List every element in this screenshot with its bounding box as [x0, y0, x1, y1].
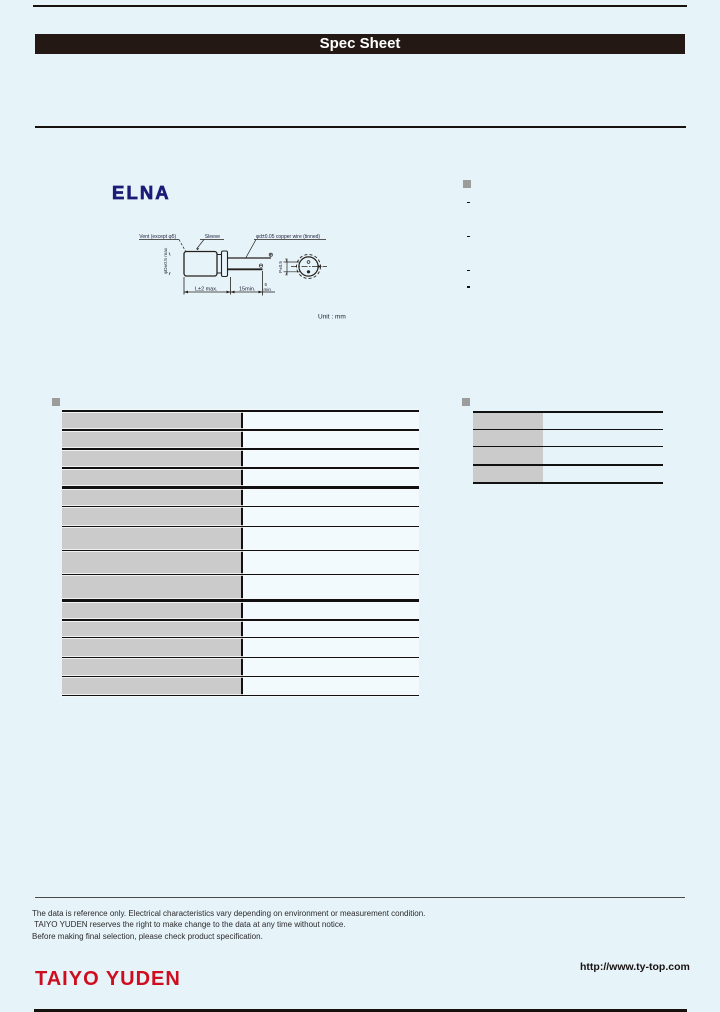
svg-text:min: min — [264, 287, 272, 292]
svg-text:φD±0.5 max: φD±0.5 max — [163, 247, 169, 274]
svg-text:Sleeve: Sleeve — [205, 234, 221, 240]
svg-text:L±2 max.: L±2 max. — [195, 287, 218, 293]
svg-text:Unit : mm: Unit : mm — [318, 313, 346, 320]
svg-text:φd±0.05 copper wire (tinned): φd±0.05 copper wire (tinned) — [256, 234, 320, 240]
svg-text:Vent (except φ5): Vent (except φ5) — [139, 234, 176, 240]
svg-text:P±0.5: P±0.5 — [278, 261, 283, 273]
svg-text:15min.: 15min. — [239, 287, 256, 293]
